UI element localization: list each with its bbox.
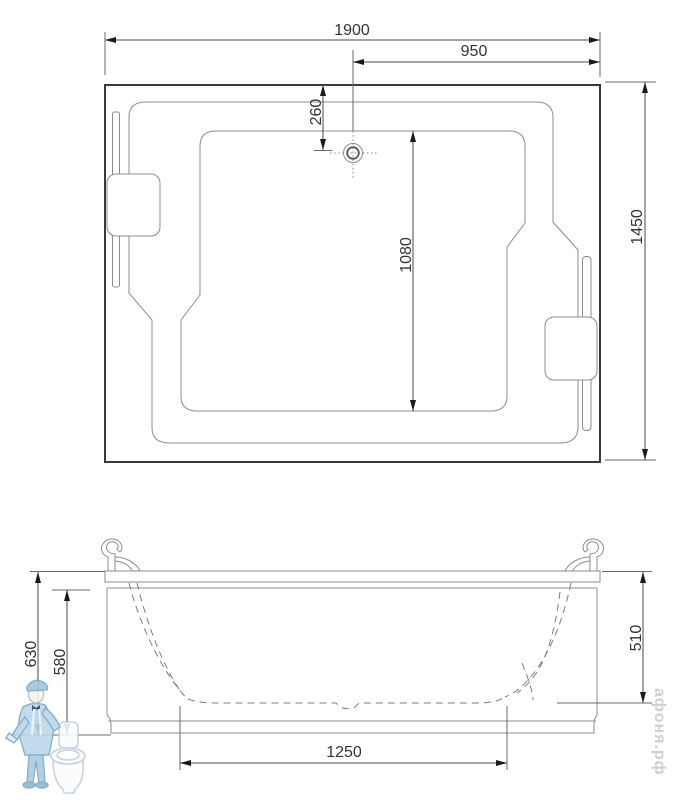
plan-view: 1900 950 260 1080 bbox=[105, 22, 656, 462]
tub-outer-rect bbox=[105, 85, 600, 462]
rim-slab bbox=[105, 571, 600, 582]
drain-icon bbox=[330, 131, 377, 178]
tub-rim-contour bbox=[129, 102, 578, 443]
blueprint-page: 1900 950 260 1080 bbox=[0, 0, 678, 800]
dim-edge-to-drain: 260 bbox=[308, 85, 332, 151]
dim-apron-height: 580 bbox=[52, 590, 90, 735]
dim-inner-depth: 510 bbox=[557, 572, 652, 704]
dim-label-510: 510 bbox=[628, 625, 645, 652]
dim-label-580: 580 bbox=[52, 649, 69, 676]
right-headrest bbox=[545, 317, 597, 380]
watermark-site-text: афоня.рф bbox=[651, 688, 668, 776]
dim-label-1080: 1080 bbox=[398, 237, 415, 273]
dim-label-1250: 1250 bbox=[326, 744, 362, 761]
hidden-basin-profile bbox=[129, 583, 571, 709]
dim-label-1900: 1900 bbox=[334, 22, 370, 39]
dim-label-260: 260 bbox=[308, 99, 325, 126]
left-headrest bbox=[107, 174, 160, 236]
front-view: 630 580 510 1250 bbox=[10, 539, 652, 770]
dim-label-630: 630 bbox=[23, 641, 40, 668]
dim-drain-to-right-edge: 950 bbox=[353, 43, 600, 131]
dim-base-length: 1250 bbox=[180, 706, 507, 770]
dim-label-950: 950 bbox=[461, 43, 488, 60]
bathtub-drawing: 1900 950 260 1080 bbox=[0, 0, 678, 800]
watermark-plumber-icon bbox=[6, 680, 85, 793]
left-deck-handle-icon bbox=[102, 539, 140, 571]
right-deck-handle-icon bbox=[565, 539, 603, 571]
dim-overall-width: 1450 bbox=[605, 82, 656, 460]
dim-label-1450: 1450 bbox=[629, 209, 646, 245]
dim-basin-length: 1080 bbox=[398, 131, 416, 411]
